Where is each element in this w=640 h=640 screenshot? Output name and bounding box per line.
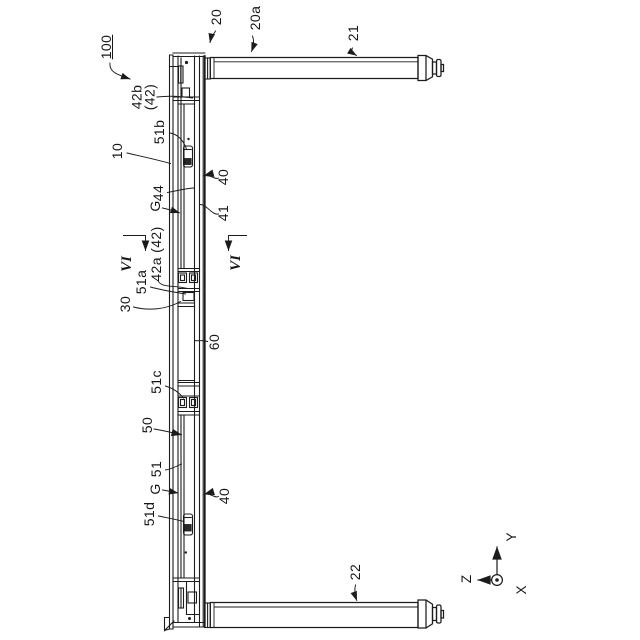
roller-22 — [210, 600, 443, 628]
roller-21 — [210, 56, 443, 81]
label-axis-x: X — [515, 585, 529, 594]
coordinate-axes-icon — [478, 547, 502, 585]
label-41: 41 — [216, 205, 230, 221]
label-axis-y: Y — [505, 532, 519, 541]
upper-rail-section-10 — [184, 138, 193, 167]
label-51b: 51b — [152, 120, 166, 145]
label-vi-left: VI — [120, 256, 134, 272]
lower-rail-section-50 — [184, 514, 193, 554]
label-51d: 51d — [142, 502, 156, 527]
label-40-bottom: 40 — [217, 488, 231, 504]
lower-connector-51c — [178, 383, 200, 416]
label-g-bottom: G — [148, 483, 162, 494]
leader-20 — [210, 31, 216, 43]
label-g-top: G — [148, 200, 162, 211]
leader-g-top — [163, 208, 180, 213]
label-20: 20 — [209, 9, 223, 25]
label-30: 30 — [118, 296, 132, 312]
label-42b: 42b (42) — [131, 84, 156, 111]
leader-100 — [110, 63, 130, 79]
figure-drawing — [0, 0, 640, 640]
label-40-top: 40 — [216, 169, 230, 185]
leader-20a — [252, 36, 254, 52]
leader-21 — [351, 48, 356, 56]
leader-g-bottom — [163, 490, 179, 493]
label-21: 21 — [346, 25, 360, 41]
label-22: 22 — [348, 564, 362, 580]
section-marker-vi-left — [124, 236, 146, 251]
leader-50 — [154, 429, 182, 435]
roller-22-endcap — [418, 600, 433, 628]
label-44: 44 — [151, 185, 165, 201]
base-plate-40-41 — [200, 56, 205, 627]
label-51c: 51c — [149, 370, 163, 394]
rail-walls — [178, 56, 195, 622]
label-50: 50 — [140, 417, 154, 433]
section-marker-vi-right — [229, 236, 247, 251]
leader-10 — [127, 153, 171, 164]
panel-60 — [178, 303, 195, 381]
label-axis-z: Z — [460, 575, 474, 583]
label-42a: 42a (42) — [149, 226, 163, 281]
label-10: 10 — [110, 143, 124, 159]
leader-22 — [355, 585, 357, 601]
label-51: 51 — [149, 461, 163, 477]
label-100: 100 — [99, 35, 113, 60]
patent-figure-canvas: 100 20 20a 21 42b (42) 51b 10 40 44 G 41… — [0, 0, 640, 640]
leader-51d — [159, 516, 185, 522]
label-20a: 20a — [248, 6, 262, 31]
roller-21-endcap — [418, 56, 433, 81]
label-60: 60 — [207, 334, 221, 350]
label-51a: 51a — [134, 270, 148, 295]
label-vi-right: VI — [229, 255, 243, 271]
label-42b-line2: (42) — [143, 84, 156, 111]
upper-connector-30 — [178, 269, 200, 301]
